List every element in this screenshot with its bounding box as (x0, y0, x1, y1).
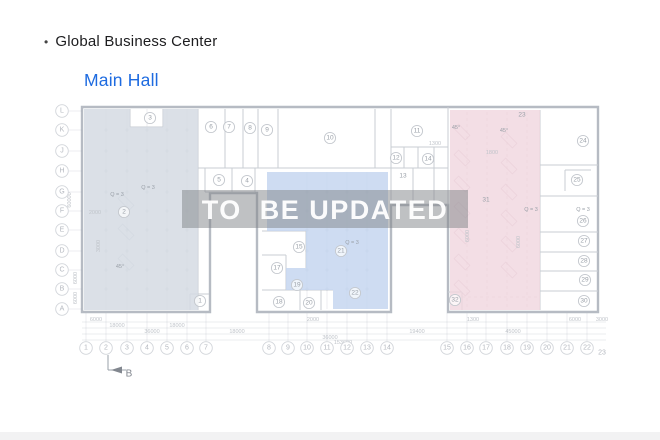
plan-annotation: 45° (500, 128, 508, 134)
grid-col-label: 11 (323, 345, 330, 352)
plan-annotation: 45° (452, 125, 460, 131)
grid-col-label: 23 (598, 350, 606, 357)
grid-col-label: 4 (145, 345, 149, 352)
grid-col-label: 9 (286, 345, 290, 352)
room-number: 8 (248, 125, 252, 132)
grid-col-label: 13 (363, 345, 371, 352)
grid-row-label: C (59, 267, 64, 274)
plan-annotation: Q = 3 (524, 207, 538, 213)
room-number: 24 (579, 138, 587, 145)
grid-row-label: F (60, 208, 64, 215)
grid-col-label: 22 (583, 345, 591, 352)
room-number: 28 (580, 258, 588, 265)
grid-row-label: L (60, 108, 64, 115)
room-number: 26 (579, 218, 587, 225)
watermark-text: TO BE UPDATED (202, 195, 449, 225)
grid-row-label: E (60, 227, 65, 234)
grid-col-label: 17 (482, 345, 490, 352)
grid-col-label: 20 (543, 345, 551, 352)
room-number: 14 (424, 156, 432, 163)
dimension-label: 3000 (596, 317, 608, 323)
dimension-label: 1300 (467, 317, 479, 323)
grid-col-label: 5 (165, 345, 169, 352)
room-number: 30 (580, 298, 588, 305)
plan-annotation: 45° (116, 264, 124, 270)
section-arrow-icon (111, 367, 122, 374)
plan-annotation: Q = 3 (141, 185, 155, 191)
room-number: 25 (573, 177, 581, 184)
grid-row-label: J (60, 148, 64, 155)
room-number: 9 (265, 127, 269, 134)
room-number: 20 (305, 300, 313, 307)
room-number: 21 (337, 248, 345, 255)
dimension-label: 3000 (96, 240, 102, 252)
dimension-label: 6000 (73, 272, 79, 284)
grid-col-label: 7 (204, 345, 208, 352)
page: • Global Business Center Main Hall 12345… (0, 0, 660, 440)
grid-row-label: G (59, 189, 64, 196)
room-number: 22 (351, 290, 359, 297)
floorplan: 1234567891011121415171819202122242526272… (0, 0, 660, 440)
room-number: 11 (414, 128, 421, 135)
grid-col-label: 1 (84, 345, 88, 352)
grid-col-label: 2 (104, 345, 108, 352)
grid-col-label: 21 (563, 345, 571, 352)
room-number: 12 (392, 155, 400, 162)
dimension-label: 18000 (229, 329, 244, 335)
section-marker-label: B (126, 369, 133, 380)
grid-col-label: 16 (463, 345, 471, 352)
grid-row-label: B (60, 286, 65, 293)
dimension-label: 6000 (90, 317, 102, 323)
room-number: 10 (326, 135, 334, 142)
dimension-label: 2000 (307, 317, 319, 323)
plan-annotation: Q = 3 (110, 192, 124, 198)
dimension-label: 6000 (516, 236, 522, 248)
grid-row-label: H (59, 168, 64, 175)
grid-col-label: 15 (443, 345, 451, 352)
grid-row-label: D (59, 248, 64, 255)
room-number: 19 (293, 282, 301, 289)
dimension-label: 1800 (486, 150, 498, 156)
grid-row-label: A (60, 306, 65, 313)
dimension-label: 36000 (144, 329, 159, 335)
room-number: 1 (198, 298, 202, 305)
dimension-label: 6000 (465, 230, 471, 242)
window-bottom-edge (0, 432, 660, 440)
room-number: 32 (451, 297, 459, 304)
dimension-label: 18000 (169, 323, 184, 329)
grid-col-label: 10 (303, 345, 311, 352)
dimension-label: 6000 (569, 317, 581, 323)
grid-row-label: K (60, 127, 65, 134)
room-number: 4 (245, 178, 249, 185)
grid-col-label: 19 (523, 345, 531, 352)
room-number: 7 (227, 124, 231, 131)
room-number: 3 (148, 115, 152, 122)
room-number: 13 (399, 173, 407, 180)
plan-annotation: Q = 3 (576, 207, 590, 213)
grid-col-label: 14 (383, 345, 391, 352)
room-number: 29 (581, 277, 589, 284)
room-number: 18 (275, 299, 283, 306)
room-number: 2 (122, 209, 126, 216)
grid-col-label: 8 (267, 345, 271, 352)
grid-col-label: 18 (503, 345, 511, 352)
plan-annotation: Q = 3 (345, 240, 359, 246)
dimension-label: 1300 (429, 141, 441, 147)
grid-col-label: 3 (125, 345, 129, 352)
grid-col-label: 12 (343, 345, 351, 352)
dimension-label: 18000 (109, 323, 124, 329)
plan-svg: 1234567891011121415171819202122242526272… (0, 0, 660, 440)
room-number: 27 (580, 238, 588, 245)
dimension-label: 2000 (89, 210, 101, 216)
dimension-label: 45000 (505, 329, 520, 335)
room-number: 6 (209, 124, 213, 131)
grid-col-label: 6 (185, 345, 189, 352)
room-number: 23 (518, 112, 526, 119)
dimension-label: 19400 (409, 329, 424, 335)
room-number: 5 (217, 177, 221, 184)
room-number: 15 (295, 244, 303, 251)
dimension-label: 6000 (73, 292, 79, 304)
room-number: 17 (273, 265, 281, 272)
room-number: 31 (482, 197, 490, 204)
